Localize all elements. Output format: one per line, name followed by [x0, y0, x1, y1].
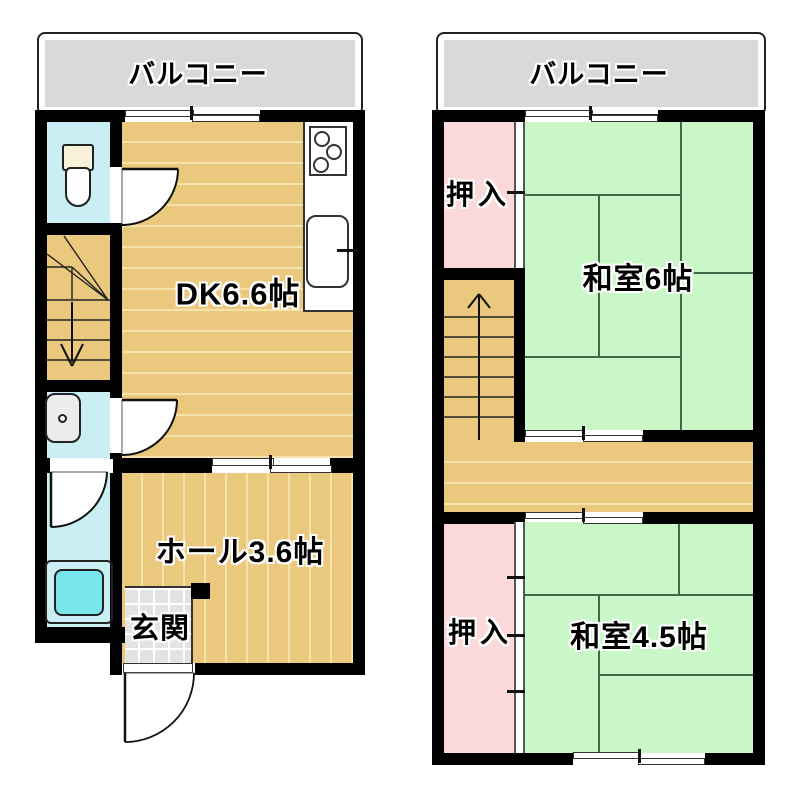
wall-segment [110, 110, 122, 167]
front-door-swing-icon [125, 673, 194, 742]
wall-segment [35, 627, 125, 643]
front-door-opening [123, 663, 193, 673]
door-tick [582, 508, 585, 522]
tatami-line [525, 194, 682, 196]
stove-burner-icon [314, 131, 330, 147]
wall-segment [514, 280, 525, 442]
bathtub-icon [54, 569, 104, 616]
wall-segment [432, 110, 525, 122]
closet-south-label: 押入 [448, 611, 512, 651]
wall-segment [432, 110, 444, 765]
tatami-line [598, 674, 753, 676]
hall-label: ホール3.6帖 [156, 527, 325, 571]
stove-burner-icon [326, 144, 342, 160]
wall-segment [432, 753, 573, 765]
wall-segment [35, 223, 122, 235]
wall-segment [35, 380, 122, 392]
bathroom-door-opening [50, 459, 113, 473]
balcony-window-2f [525, 110, 593, 117]
wall-segment [330, 458, 365, 473]
closet-south-fusuma-door [514, 522, 525, 753]
entrance-label: 玄関 [130, 605, 190, 647]
wall-segment [432, 268, 525, 280]
staircase-2f [444, 280, 514, 442]
toilet-door-opening [110, 167, 122, 223]
wall-segment [191, 583, 210, 599]
fusuma-tick [507, 690, 525, 693]
tatami45-label: 和室4.5帖 [570, 612, 708, 656]
tatami6-sliding-door [525, 430, 585, 437]
dk-hall-sliding-door [270, 465, 332, 473]
closet-north-fusuma-door [514, 122, 525, 268]
wall-segment [260, 110, 365, 122]
wall-segment [113, 458, 212, 473]
tatami45-sliding-door [525, 512, 585, 519]
washroom-door-opening [110, 398, 122, 453]
window-tick [190, 106, 193, 120]
wall-segment [643, 430, 765, 442]
wall-segment [432, 512, 525, 524]
stove-burner-icon [313, 157, 329, 173]
tatami-line [525, 594, 753, 596]
staircase-1f [47, 235, 110, 380]
closet-north-label: 押入 [446, 173, 510, 213]
balcony-window-2f [591, 115, 658, 122]
dk-label: DK6.6帖 [176, 269, 301, 314]
wall-segment [705, 753, 765, 765]
south-window-2f [638, 758, 705, 765]
balcony-window-1f [192, 115, 260, 122]
wall-segment [195, 663, 365, 675]
tatami-line [678, 522, 680, 596]
south-window-2f [573, 752, 640, 759]
tatami45-sliding-door [583, 517, 643, 524]
tatami6-sliding-door [583, 435, 643, 442]
dk-hall-sliding-door [212, 458, 274, 466]
faucet-icon [337, 249, 358, 252]
tatami6-label: 和室6帖 [583, 254, 694, 298]
balcony-1f-label: バルコニー [128, 53, 267, 92]
tatami-line [525, 356, 682, 358]
wall-segment [353, 110, 365, 675]
window-tick [638, 749, 641, 763]
washbasin-drain-icon [58, 414, 67, 423]
floor-plan: バルコニー [0, 0, 796, 800]
balcony-2f-label: バルコニー [529, 53, 668, 92]
door-tick [269, 455, 272, 469]
toilet-bowl-icon [65, 167, 91, 207]
corridor-2f [444, 442, 753, 512]
fusuma-tick [507, 576, 525, 579]
wall-segment [110, 223, 122, 398]
door-tick [582, 426, 585, 440]
wall-segment [643, 512, 765, 524]
wall-segment [35, 458, 50, 473]
wall-segment [658, 110, 765, 122]
balcony-window-1f [125, 110, 194, 117]
window-tick [589, 106, 592, 120]
